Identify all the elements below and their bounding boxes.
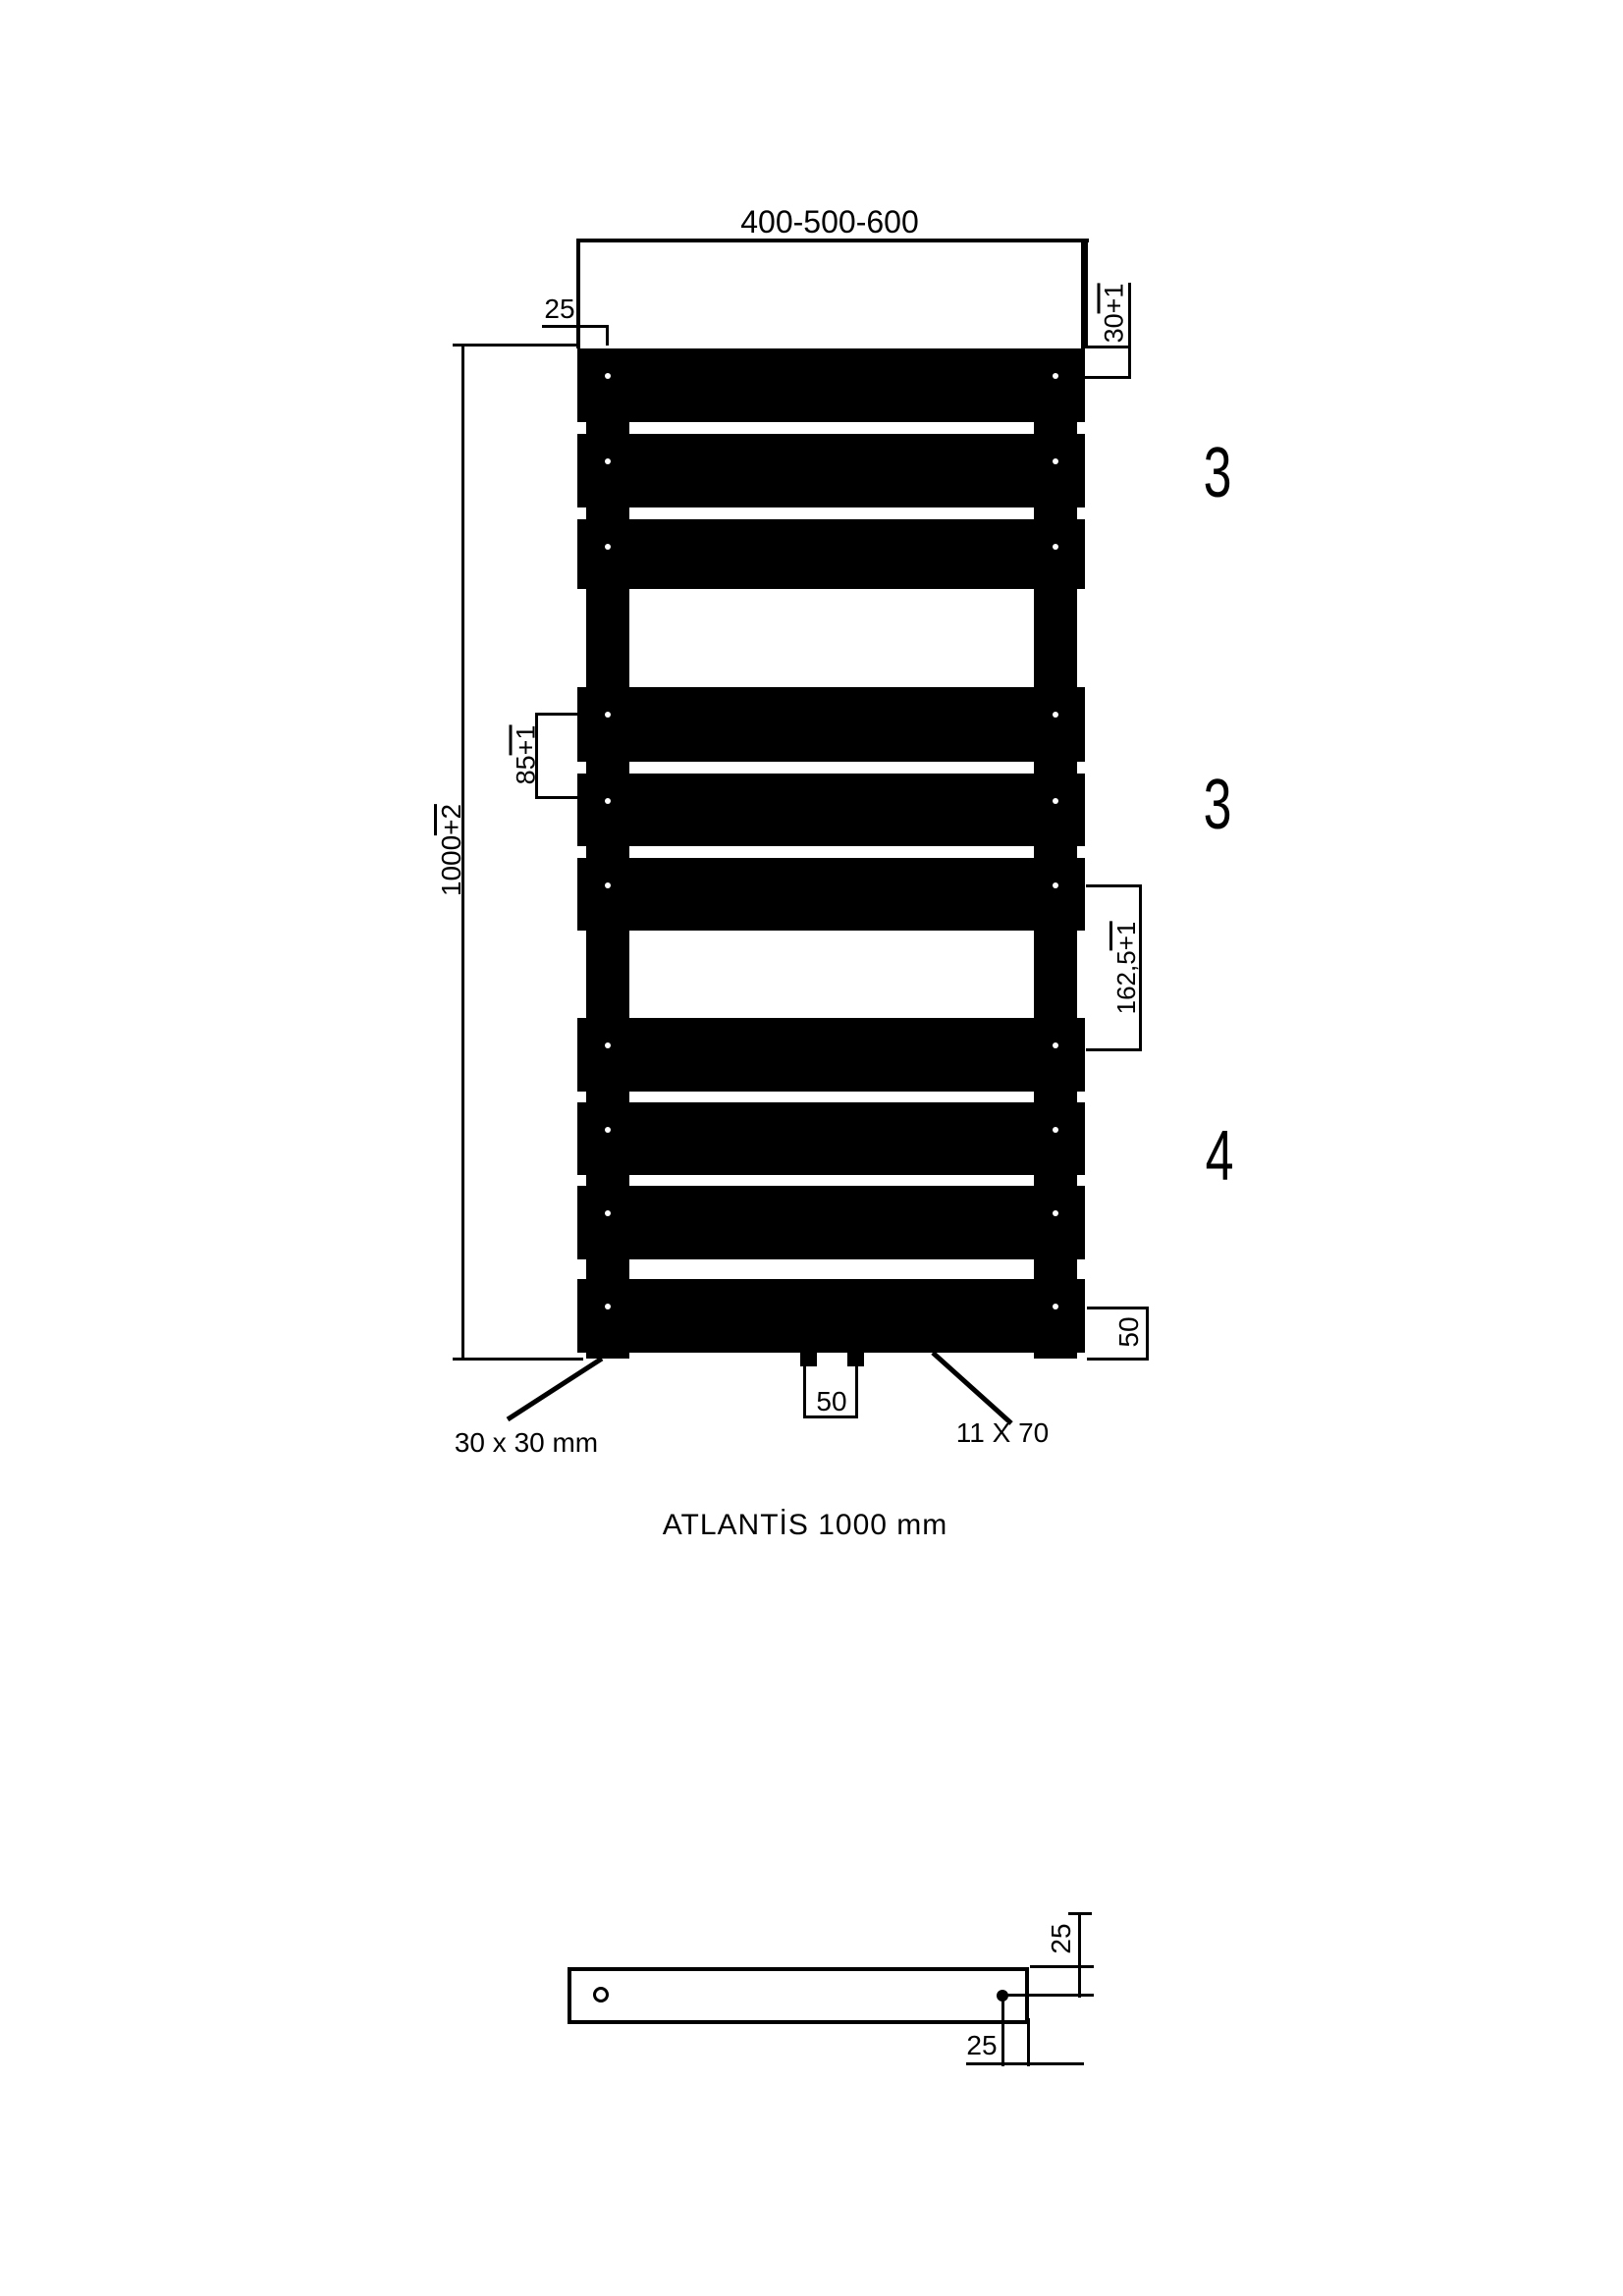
bv25v-dim-line [1078,1914,1081,1998]
collector-size-label: 30 x 30 mm [455,1429,598,1457]
bv25v-label: 25 [1048,1923,1075,1953]
bv25h-ext-dot [1001,2000,1004,2066]
group-count-label-1: 3 [1204,438,1232,508]
bottom-view-profile [568,1967,1029,2024]
bv25h-dim-line [966,2062,1084,2065]
bv25h-label: 25 [966,2032,997,2059]
group-count-label-2: 3 [1204,770,1232,840]
panel-profile-label: 11 X 70 [956,1419,1049,1447]
bv25h-ext-corner [1027,2018,1030,2066]
leader-lines [0,0,1623,2296]
bv25v-end-tick [1068,1912,1092,1915]
drawing-title: ATLANTİS 1000 mm [663,1511,948,1540]
group-count-label-3: 4 [1206,1121,1234,1192]
bv25v-ext-top [1030,1965,1094,1968]
bottom-view-left-hole-icon [593,1987,609,2002]
collector-size-leader [508,1359,602,1419]
panel-profile-leader [933,1353,1011,1423]
technical-drawing-canvas: 400-500-600 25 30+1 1000+2 85+1 162,5+1 … [0,0,1623,2296]
